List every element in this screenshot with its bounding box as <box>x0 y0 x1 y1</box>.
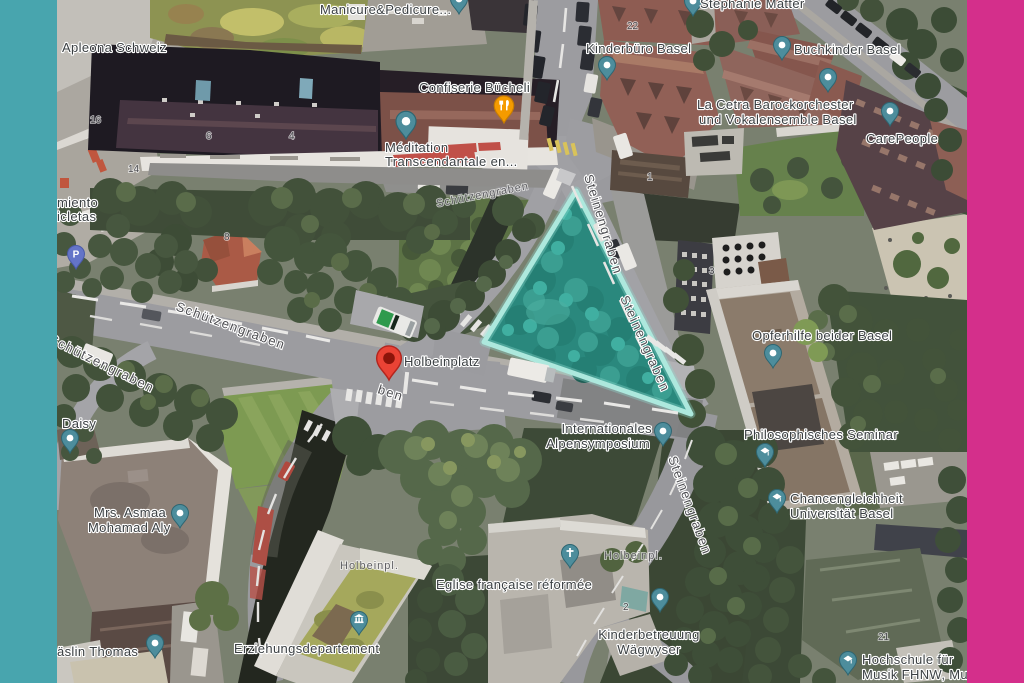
svg-text:Erziehungsdepartement: Erziehungsdepartement <box>234 641 379 656</box>
svg-text:Opferhilfe beider Basel: Opferhilfe beider Basel <box>752 328 892 343</box>
svg-text:Eglise française réformée: Eglise française réformée <box>436 577 592 592</box>
svg-text:Internationales: Internationales <box>561 421 652 436</box>
svg-text:Stephanie Matter: Stephanie Matter <box>700 0 805 11</box>
svg-text:1: 1 <box>647 172 653 183</box>
svg-text:8: 8 <box>224 232 230 243</box>
svg-text:16: 16 <box>90 115 102 126</box>
svg-text:miento: miento <box>57 195 98 210</box>
svg-text:Buchkinder Basel: Buchkinder Basel <box>794 42 901 57</box>
svg-text:Philosophisches Seminar: Philosophisches Seminar <box>744 427 898 442</box>
svg-text:Holbeinpl.: Holbeinpl. <box>604 550 663 562</box>
svg-text:äslin Thomas: äslin Thomas <box>57 644 138 659</box>
svg-text:Hochschule für: Hochschule für <box>862 652 954 667</box>
svg-text:Confiserie Bücheli: Confiserie Bücheli <box>419 80 530 95</box>
svg-text:Wägwyser: Wägwyser <box>617 642 681 657</box>
svg-text:Daisy: Daisy <box>62 416 96 431</box>
svg-text:Manicure&Pedicure...: Manicure&Pedicure... <box>320 2 451 17</box>
svg-text:2: 2 <box>623 602 629 613</box>
svg-text:icletas: icletas <box>57 209 96 224</box>
svg-text:Alpensymposium: Alpensymposium <box>546 436 650 451</box>
svg-text:La Cetra Barockorchester: La Cetra Barockorchester <box>697 97 854 112</box>
svg-text:6: 6 <box>206 131 212 142</box>
svg-text:Universität Basel: Universität Basel <box>790 506 894 521</box>
svg-text:Mrs. Asmaa: Mrs. Asmaa <box>94 505 167 520</box>
svg-text:CarePeople: CarePeople <box>866 131 938 146</box>
svg-text:Holbeinpl.: Holbeinpl. <box>340 560 399 572</box>
svg-text:Méditation: Méditation <box>385 140 448 155</box>
svg-text:Chancengleichheit: Chancengleichheit <box>790 491 903 506</box>
svg-text:Mohamad Aly: Mohamad Aly <box>88 520 171 535</box>
svg-text:Transcendantale en...: Transcendantale en... <box>385 154 518 169</box>
svg-text:14: 14 <box>128 164 140 175</box>
svg-text:Kinderbüro Basel: Kinderbüro Basel <box>586 41 691 56</box>
svg-text:Holbeinplatz: Holbeinplatz <box>404 354 480 369</box>
svg-text:Kinderbetreuung: Kinderbetreuung <box>598 627 699 642</box>
svg-text:3: 3 <box>709 266 715 277</box>
svg-text:Apleona Schweiz: Apleona Schweiz <box>62 40 167 55</box>
svg-text:P: P <box>73 250 80 261</box>
svg-text:22: 22 <box>627 21 639 32</box>
svg-text:und Vokalensemble Basel: und Vokalensemble Basel <box>699 112 857 127</box>
svg-text:4: 4 <box>289 131 295 142</box>
svg-text:Musik FHNW, Mus: Musik FHNW, Mus <box>862 667 975 682</box>
svg-text:21: 21 <box>878 632 890 643</box>
